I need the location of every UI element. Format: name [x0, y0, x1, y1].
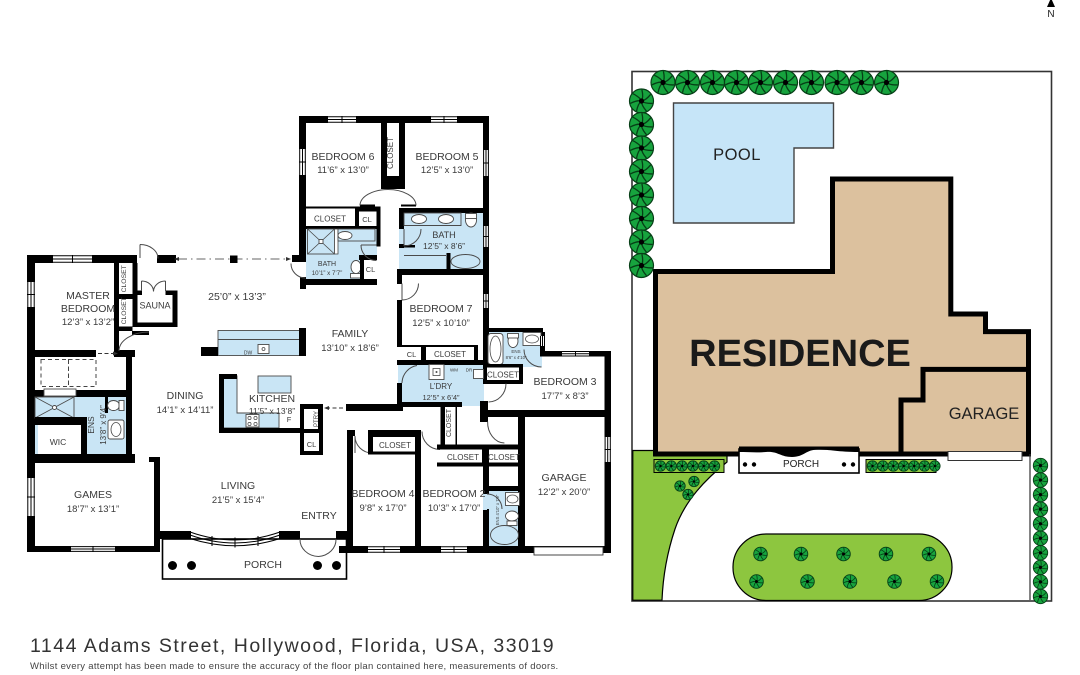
svg-text:9’8” x 17’0”: 9’8” x 17’0”	[360, 503, 407, 514]
svg-text:N: N	[1047, 9, 1054, 20]
svg-text:CL: CL	[366, 265, 376, 274]
svg-text:SAUNA: SAUNA	[139, 301, 170, 311]
svg-text:CLOSET: CLOSET	[434, 350, 466, 359]
svg-text:CL: CL	[362, 215, 372, 224]
svg-text:12’5” x 8’6”: 12’5” x 8’6”	[423, 241, 465, 251]
svg-text:DR: DR	[466, 368, 473, 373]
svg-text:ENTRY: ENTRY	[301, 510, 336, 522]
svg-text:ENS: ENS	[511, 349, 520, 354]
svg-text:11’6” x 13’0”: 11’6” x 13’0”	[317, 165, 369, 176]
svg-text:BEDROOM 6: BEDROOM 6	[311, 151, 374, 163]
svg-text:ENS: ENS	[86, 416, 96, 434]
svg-text:14’1” x 14’11”: 14’1” x 14’11”	[157, 405, 214, 416]
svg-text:1144 Adams Street, Hollywood,: 1144 Adams Street, Hollywood, Florida, U…	[30, 635, 555, 657]
svg-text:CLOSET: CLOSET	[121, 297, 128, 324]
svg-text:POOL: POOL	[713, 146, 761, 164]
svg-text:PORCH: PORCH	[244, 559, 282, 571]
svg-text:GARAGE: GARAGE	[949, 405, 1020, 423]
svg-text:CLOSET: CLOSET	[314, 215, 346, 224]
svg-text:LIVING: LIVING	[221, 480, 255, 492]
svg-text:12’2” x 20’0”: 12’2” x 20’0”	[538, 487, 590, 498]
svg-text:BATH: BATH	[318, 261, 336, 268]
svg-text:CL: CL	[307, 440, 317, 449]
svg-text:WIC: WIC	[50, 437, 67, 447]
svg-text:BEDROOM 2: BEDROOM 2	[422, 488, 485, 500]
svg-text:BEDROOM 3: BEDROOM 3	[533, 376, 596, 388]
svg-text:BEDROOM 7: BEDROOM 7	[409, 303, 472, 315]
svg-text:8’6” x 4’10”: 8’6” x 4’10”	[506, 355, 527, 360]
svg-text:CLOSET: CLOSET	[487, 371, 519, 380]
svg-text:L’DRY: L’DRY	[430, 382, 453, 391]
svg-text:13’10” x 18’6”: 13’10” x 18’6”	[321, 343, 379, 354]
svg-text:BEDROOM: BEDROOM	[61, 303, 115, 315]
svg-text:25’0” x 13’3”: 25’0” x 13’3”	[208, 291, 266, 303]
svg-text:GARAGE: GARAGE	[542, 472, 587, 484]
svg-text:BEDROOM 4: BEDROOM 4	[351, 488, 414, 500]
svg-text:CL: CL	[407, 350, 417, 359]
svg-text:12’5” x 10’10”: 12’5” x 10’10”	[412, 318, 470, 329]
svg-text:ENS 4’10” x 7’9”: ENS 4’10” x 7’9”	[495, 494, 500, 525]
svg-text:GAMES: GAMES	[74, 489, 112, 501]
svg-text:WM: WM	[450, 368, 458, 373]
svg-text:Whilst every attempt has been: Whilst every attempt has been made to en…	[30, 661, 558, 672]
svg-text:RESIDENCE: RESIDENCE	[689, 333, 911, 375]
svg-text:DW: DW	[244, 351, 253, 357]
svg-text:10’3” x 17’0”: 10’3” x 17’0”	[428, 503, 480, 514]
svg-text:CLOSET: CLOSET	[446, 408, 453, 437]
svg-text:BATH: BATH	[432, 230, 455, 240]
svg-text:12’5” x 6’4”: 12’5” x 6’4”	[422, 393, 460, 402]
svg-text:CLOSET: CLOSET	[447, 453, 479, 462]
svg-text:KITCHEN: KITCHEN	[249, 393, 295, 405]
svg-text:CLOSET: CLOSET	[121, 265, 128, 292]
svg-text:10’1” x 7’7”: 10’1” x 7’7”	[312, 270, 343, 277]
svg-text:PTRY: PTRY	[314, 411, 320, 427]
svg-text:18’7” x 13’1”: 18’7” x 13’1”	[67, 504, 119, 515]
svg-text:CLOSET: CLOSET	[386, 137, 395, 169]
svg-text:BEDROOM 5: BEDROOM 5	[415, 151, 478, 163]
svg-text:21’5” x 15’4”: 21’5” x 15’4”	[212, 495, 264, 506]
svg-text:12’5” x 13’0”: 12’5” x 13’0”	[421, 165, 473, 176]
svg-text:MASTER: MASTER	[66, 290, 110, 302]
svg-text:CLOSET: CLOSET	[488, 453, 520, 462]
svg-text:13’8” x 9’4”: 13’8” x 9’4”	[99, 405, 108, 445]
svg-text:PORCH: PORCH	[783, 459, 819, 470]
svg-text:17’7” x 8’3”: 17’7” x 8’3”	[542, 391, 589, 402]
svg-text:DINING: DINING	[167, 390, 204, 402]
svg-text:FAMILY: FAMILY	[332, 328, 369, 340]
svg-text:CLOSET: CLOSET	[379, 441, 411, 450]
svg-text:F: F	[287, 415, 292, 424]
svg-text:12’3” x 13’2”: 12’3” x 13’2”	[62, 317, 114, 328]
